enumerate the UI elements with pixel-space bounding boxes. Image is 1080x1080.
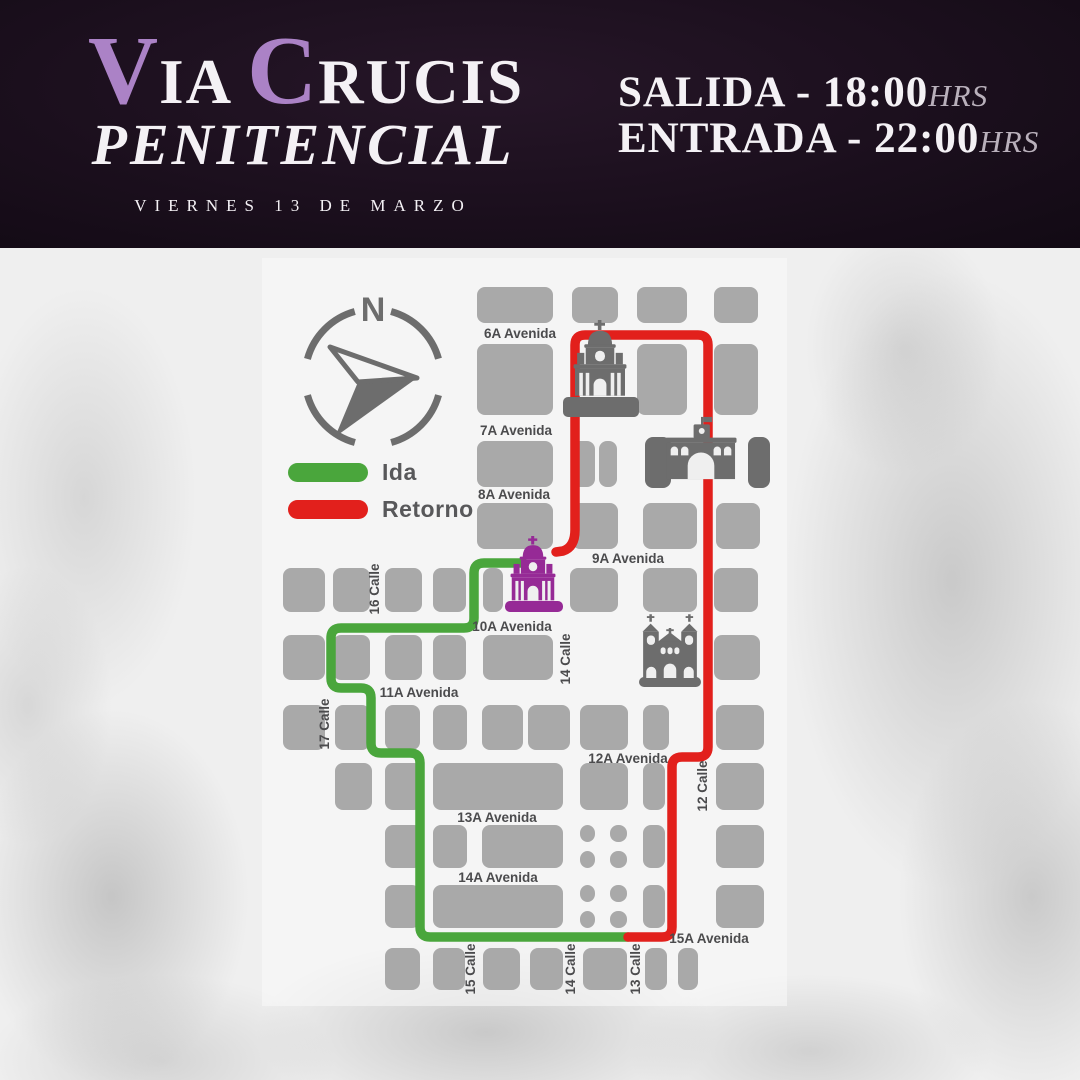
city-block [283, 568, 325, 612]
city-block [385, 885, 420, 928]
city-block [580, 911, 595, 928]
city-block [483, 948, 520, 990]
legend-color-bar [288, 463, 368, 482]
city-block [610, 885, 627, 902]
city-block [580, 825, 595, 842]
church-base [563, 397, 639, 417]
city-block [610, 851, 627, 868]
street-label: 14 Calle [558, 633, 573, 685]
street-label: 17 Calle [317, 698, 332, 750]
title-rucis: RUCIS [318, 47, 524, 117]
church-base [639, 677, 701, 687]
city-block [335, 705, 370, 750]
city-block [714, 287, 758, 323]
legend-label: Retorno [382, 496, 474, 523]
route-legend: IdaRetorno [288, 462, 474, 536]
street-label: 7A Avenida [480, 423, 553, 438]
title-initial-c: C [247, 17, 318, 124]
city-block [482, 825, 563, 868]
salida-hrs: HRS [928, 78, 988, 113]
street-label: 12 Calle [695, 760, 710, 812]
city-block [433, 948, 465, 990]
street-label: 14 Calle [563, 943, 578, 995]
church-east-icon [643, 614, 698, 678]
city-block [335, 763, 372, 810]
city-block [643, 885, 665, 928]
poster-subtitle: PENITENCIAL [88, 111, 518, 178]
arch-monument-icon [665, 417, 736, 479]
city-block [433, 825, 467, 868]
city-block [477, 503, 553, 549]
city-block [716, 825, 764, 868]
city-block [716, 503, 760, 549]
street-label: 8A Avenida [478, 487, 551, 502]
city-block [283, 635, 325, 680]
compass-rose: N [305, 291, 441, 445]
city-block [385, 635, 422, 680]
city-block [643, 705, 669, 750]
city-block [714, 635, 760, 680]
compass-arrow-lower [335, 378, 417, 437]
title-ia: IA [159, 47, 233, 117]
city-block [645, 948, 667, 990]
event-date: VIERNES 13 DE MARZO [88, 196, 518, 216]
city-block [637, 287, 687, 323]
compass-north-label: N [361, 291, 386, 329]
city-block [572, 287, 618, 323]
salida-time: SALIDA - 18:00HRS [618, 70, 1039, 116]
city-block [483, 635, 553, 680]
city-block [482, 705, 523, 750]
city-block [333, 635, 370, 680]
city-block [580, 851, 595, 868]
title-block: VIACRUCIS PENITENCIAL VIERNES 13 DE MARZ… [88, 22, 518, 216]
city-block [643, 763, 665, 810]
city-block [433, 568, 466, 612]
city-block [477, 287, 553, 323]
street-label: 13A Avenida [457, 810, 537, 825]
city-block [333, 568, 370, 612]
compass-circle [305, 309, 441, 445]
city-block [637, 344, 687, 415]
entrada-time: ENTRADA - 22:00HRS [618, 116, 1039, 162]
city-block [477, 344, 553, 415]
city-block [570, 568, 618, 612]
city-block [610, 825, 627, 842]
city-block [530, 948, 563, 990]
schedule-block: SALIDA - 18:00HRS ENTRADA - 22:00HRS [618, 70, 1039, 163]
city-block [714, 568, 758, 612]
city-block [716, 763, 764, 810]
city-block [385, 705, 420, 750]
entrada-hrs: HRS [979, 124, 1039, 159]
city-block [580, 763, 628, 810]
city-block [528, 705, 570, 750]
city-block [643, 825, 665, 868]
city-block [433, 763, 563, 810]
city-block [433, 705, 467, 750]
city-block [385, 948, 420, 990]
city-block [580, 885, 595, 902]
street-label: 16 Calle [367, 563, 382, 615]
city-block [678, 948, 698, 990]
street-label: 10A Avenida [472, 619, 552, 634]
city-block [433, 635, 466, 680]
street-label: 6A Avenida [484, 326, 557, 341]
legend-label: Ida [382, 459, 417, 486]
title-initial-v: V [88, 17, 159, 124]
city-block [580, 705, 628, 750]
city-block [610, 911, 627, 928]
city-block [716, 705, 764, 750]
city-block [477, 441, 553, 487]
header-banner: VIACRUCIS PENITENCIAL VIERNES 13 DE MARZ… [0, 0, 1080, 248]
street-label: 15A Avenida [669, 931, 749, 946]
salida-label: SALIDA - 18:00 [618, 69, 928, 116]
street-label: 11A Avenida [380, 685, 459, 700]
legend-item-retorno: Retorno [288, 499, 474, 519]
city-block [599, 441, 617, 487]
city-block [643, 568, 697, 612]
entrada-label: ENTRADA - 22:00 [618, 115, 979, 162]
compass-arrow-upper [330, 347, 417, 382]
legend-color-bar [288, 500, 368, 519]
church-base [505, 601, 563, 612]
city-block [385, 568, 422, 612]
street-label: 15 Calle [463, 943, 478, 995]
poster-title: VIACRUCIS [88, 22, 518, 119]
legend-item-ida: Ida [288, 462, 474, 482]
city-block [483, 568, 503, 612]
city-block [714, 344, 758, 415]
city-block [433, 885, 563, 928]
street-label: 13 Calle [628, 943, 643, 995]
city-block [716, 885, 764, 928]
street-label: 12A Avenida [588, 751, 668, 766]
street-label: 9A Avenida [592, 551, 665, 566]
city-block [583, 948, 627, 990]
street-label: 14A Avenida [458, 870, 538, 885]
city-block [748, 437, 770, 488]
city-block [643, 503, 697, 549]
